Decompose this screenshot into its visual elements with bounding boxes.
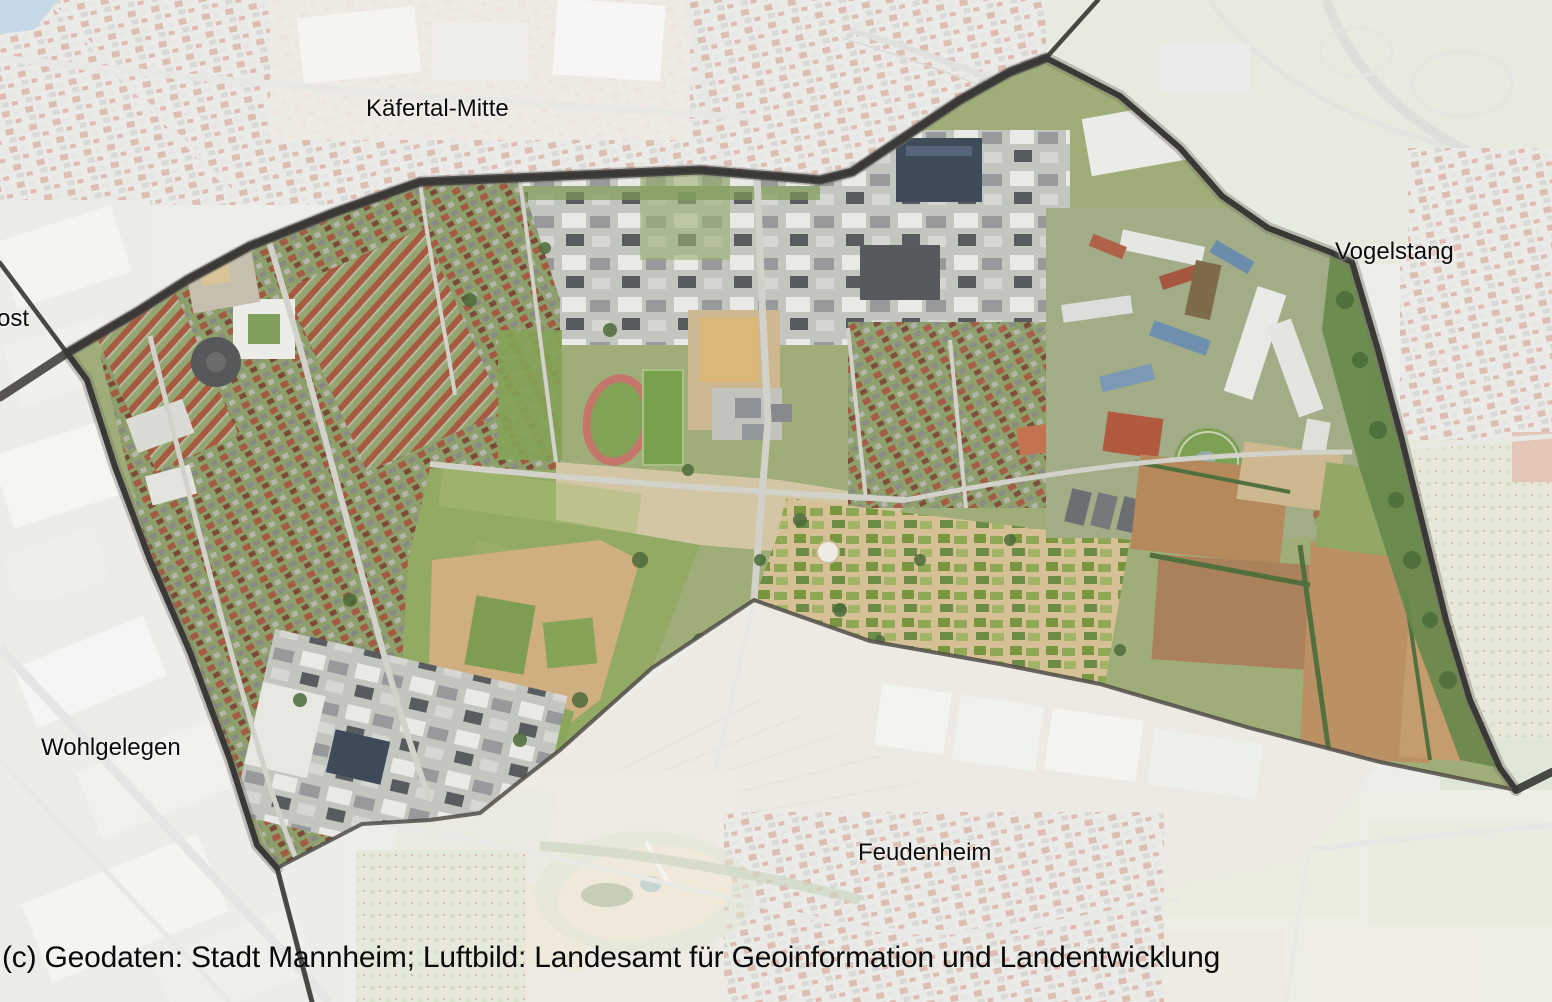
aerial-imagery — [0, 0, 1552, 1002]
copyright-attribution: (c) Geodaten: Stadt Mannheim; Luftbild: … — [2, 941, 1220, 975]
map-viewport[interactable]: Käfertal-Mitte Vogelstang Wohlgelegen Fe… — [0, 0, 1552, 1002]
